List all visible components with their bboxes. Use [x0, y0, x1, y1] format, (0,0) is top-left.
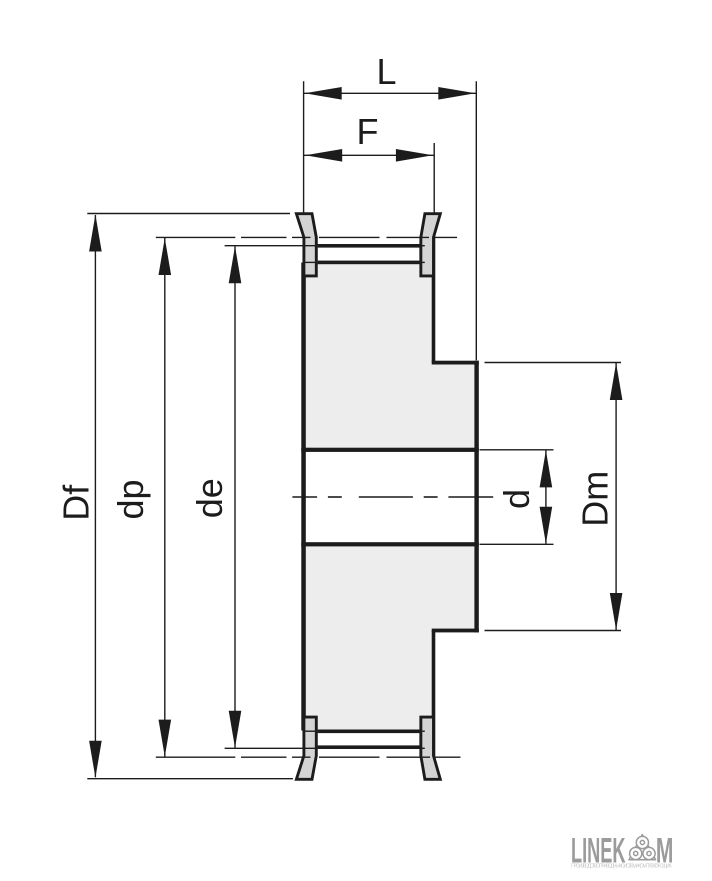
svg-text:d: d	[496, 489, 537, 509]
svg-text:Df: Df	[56, 484, 97, 521]
svg-text:F: F	[357, 111, 379, 152]
svg-text:dp: dp	[110, 479, 151, 519]
svg-text:L: L	[376, 51, 396, 92]
svg-text:de: de	[189, 478, 230, 518]
svg-text:Dm: Dm	[575, 471, 616, 527]
svg-text:ПРОИЗВОДСТВО ПРИВОДНЫХ СИСТЕМ: ПРОИЗВОДСТВО ПРИВОДНЫХ СИСТЕМ И КОМПЛЕКТ…	[571, 863, 672, 869]
